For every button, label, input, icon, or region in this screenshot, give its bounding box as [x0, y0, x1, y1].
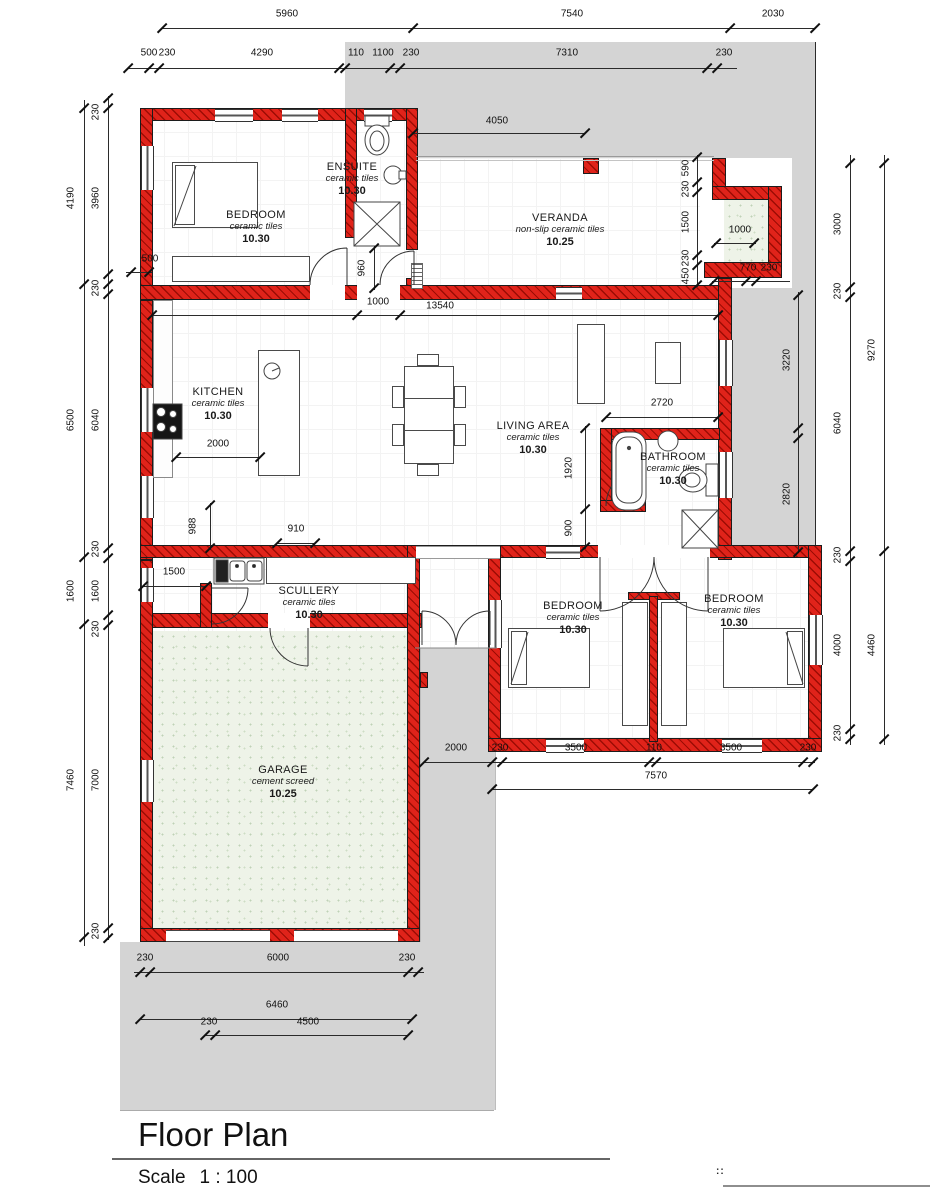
dim-line	[143, 586, 206, 587]
room-label-ensuite: ENSUITEceramic tiles10.30	[326, 161, 379, 197]
chair	[454, 424, 466, 446]
dim-label: 230	[91, 923, 102, 940]
bed-pillow	[511, 631, 527, 685]
dim-label: 450	[681, 268, 692, 285]
dim-line	[162, 28, 815, 29]
dim-label: 500	[142, 254, 159, 265]
chair	[392, 424, 404, 446]
dim-line	[697, 155, 698, 287]
cabinet	[655, 342, 681, 384]
dim-label: 13540	[426, 301, 454, 312]
dim-label: 2030	[762, 9, 784, 20]
dim-line	[413, 133, 585, 134]
dim-line	[152, 315, 718, 316]
dim-label: 3000	[833, 213, 844, 235]
wall	[407, 545, 420, 942]
dim-label: 230	[833, 725, 844, 742]
chair	[417, 354, 439, 366]
opening	[416, 546, 500, 559]
dim-label: 230	[399, 953, 416, 964]
sideboard	[577, 324, 605, 404]
chair	[392, 386, 404, 408]
window	[141, 146, 154, 190]
dim-label: 2000	[445, 743, 467, 754]
dim-label: 230	[403, 48, 420, 59]
room-label-living-area: LIVING AREAceramic tiles10.30	[497, 420, 570, 456]
room-label-garage: GARAGEcement screed10.25	[252, 764, 314, 800]
scullery-counter	[266, 557, 416, 584]
chair	[417, 464, 439, 476]
dim-label: 7540	[561, 9, 583, 20]
dim-line	[210, 503, 211, 550]
dim-label: 7460	[66, 769, 77, 791]
dim-label: 230	[91, 541, 102, 558]
wall	[718, 278, 732, 560]
dim-label: 230	[159, 48, 176, 59]
dim-line	[850, 155, 851, 745]
room-label-bedroom-3: BEDROOMceramic tiles10.30	[704, 593, 764, 629]
dining-table-line	[404, 398, 454, 399]
dim-line	[712, 281, 790, 282]
kitchen-island	[258, 350, 300, 476]
dim-label: 2720	[651, 398, 673, 409]
dim-label: 3500	[720, 743, 742, 754]
dim-line	[798, 292, 799, 553]
dim-label: 4050	[486, 116, 508, 127]
dim-label: 110	[646, 743, 662, 754]
dim-label: 7570	[645, 771, 667, 782]
dim-label: 230	[492, 743, 509, 754]
window	[556, 287, 582, 300]
wardrobe	[661, 602, 687, 726]
veranda-edge	[416, 156, 714, 157]
dim-line	[492, 789, 813, 790]
room-label-bathroom: BATHROOMceramic tiles10.30	[640, 451, 706, 487]
dim-label: 960	[357, 260, 368, 277]
dim-label: 988	[188, 518, 199, 535]
floor-plan-canvas: 5960 7540 2030 500 230 4290 110 1100 230…	[0, 0, 936, 1200]
dim-line	[134, 972, 424, 973]
dim-line	[606, 417, 718, 418]
dim-label: 230	[716, 48, 733, 59]
scale-text: Scale1 : 100	[138, 1167, 258, 1189]
footer-marks: ::	[716, 1166, 725, 1177]
dim-label: 6460	[266, 1000, 288, 1011]
dim-line	[140, 1019, 412, 1020]
dim-label: 6000	[267, 953, 289, 964]
dim-label: 1920	[564, 457, 575, 479]
steps	[411, 263, 423, 289]
dim-label: 2820	[782, 483, 793, 505]
dim-label: 4190	[66, 187, 77, 209]
dim-label: 7310	[556, 48, 578, 59]
wardrobe	[622, 602, 648, 726]
dim-label: 230	[91, 104, 102, 121]
dim-label: 3220	[782, 349, 793, 371]
room-label-scullery: SCULLERYceramic tiles10.30	[278, 585, 339, 621]
dim-label: 500	[141, 48, 158, 59]
dim-line	[108, 96, 109, 940]
window	[215, 109, 253, 122]
window	[364, 109, 392, 122]
dim-line	[277, 543, 315, 544]
dim-label: 770	[740, 263, 757, 274]
dim-label: 1600	[91, 580, 102, 602]
dim-label: 230	[201, 1017, 218, 1028]
window	[809, 615, 823, 665]
kitchen-counter	[153, 300, 173, 478]
window	[546, 546, 580, 559]
cupboard	[172, 256, 310, 282]
dim-label: 1500	[163, 567, 185, 578]
dim-label: 6040	[91, 409, 102, 431]
dim-label: 230	[681, 181, 692, 198]
dim-label: 7000	[91, 769, 102, 791]
dim-label: 230	[833, 283, 844, 300]
title-rule	[112, 1158, 610, 1160]
dim-label: 230	[91, 280, 102, 297]
dim-label: 230	[137, 953, 154, 964]
wall-bathroom	[600, 500, 646, 512]
dim-label: 6040	[833, 412, 844, 434]
bed-pillow	[787, 631, 803, 685]
dim-label: 590	[681, 160, 692, 177]
dim-label: 230	[91, 621, 102, 638]
dim-label: 1600	[66, 580, 77, 602]
window	[282, 109, 318, 122]
wall-braai	[712, 158, 726, 188]
door-opening	[310, 285, 345, 300]
dim-label: 1100	[372, 48, 394, 59]
wall	[649, 596, 658, 742]
wall-pier	[420, 672, 428, 688]
dim-label: 6500	[66, 409, 77, 431]
site-boundary-line	[815, 42, 816, 553]
wall	[140, 560, 153, 942]
drawing-title: Floor Plan	[138, 1116, 288, 1154]
dim-label: 2000	[207, 439, 229, 450]
dim-line	[205, 1035, 408, 1036]
dining-table	[404, 366, 454, 464]
dim-line	[884, 155, 885, 745]
window	[489, 600, 502, 648]
dim-line	[84, 100, 85, 946]
dim-label: 3500	[565, 743, 587, 754]
room-label-veranda: VERANDAnon-slip ceramic tiles10.25	[516, 212, 605, 248]
garage-door	[294, 930, 398, 942]
dim-label: 1000	[367, 297, 389, 308]
wall	[488, 545, 501, 752]
dim-label: 1000	[729, 225, 751, 236]
dim-label: 110	[348, 48, 364, 59]
dim-line	[176, 457, 260, 458]
dim-label: 5960	[276, 9, 298, 20]
dim-label: 9270	[867, 339, 878, 361]
dim-label: 910	[288, 524, 305, 535]
door-opening	[598, 545, 710, 558]
room-label-bedroom-2: BEDROOMceramic tiles10.30	[543, 600, 603, 636]
dim-label: 900	[564, 520, 575, 537]
dim-label: 230	[800, 743, 817, 754]
dim-line	[585, 426, 586, 549]
footer-line	[723, 1185, 930, 1187]
dim-label: 230	[681, 250, 692, 267]
dim-label: 3960	[91, 187, 102, 209]
dim-line	[424, 762, 815, 763]
dim-label: 4000	[833, 634, 844, 656]
dim-line	[374, 246, 375, 290]
window	[719, 452, 733, 498]
chair	[454, 386, 466, 408]
dim-label: 1500	[681, 211, 692, 233]
room-label-bedroom-1: BEDROOMceramic tiles10.30	[226, 209, 286, 245]
dim-label: 230	[833, 547, 844, 564]
window	[141, 760, 154, 802]
room-label-kitchen: KITCHENceramic tiles10.30	[192, 386, 245, 422]
dim-line	[714, 243, 756, 244]
wall-bathroom	[600, 428, 720, 440]
garage-door	[166, 930, 270, 942]
dim-label: 4460	[867, 634, 878, 656]
veranda-edge	[416, 160, 714, 161]
dim-label: 230	[761, 263, 778, 274]
bed-pillow	[175, 165, 195, 225]
window	[141, 476, 154, 518]
wall	[140, 285, 732, 300]
dim-label: 4290	[251, 48, 273, 59]
window	[719, 340, 733, 386]
dim-line	[128, 68, 737, 69]
dim-label: 4500	[297, 1017, 319, 1028]
dining-table-line	[404, 430, 454, 431]
